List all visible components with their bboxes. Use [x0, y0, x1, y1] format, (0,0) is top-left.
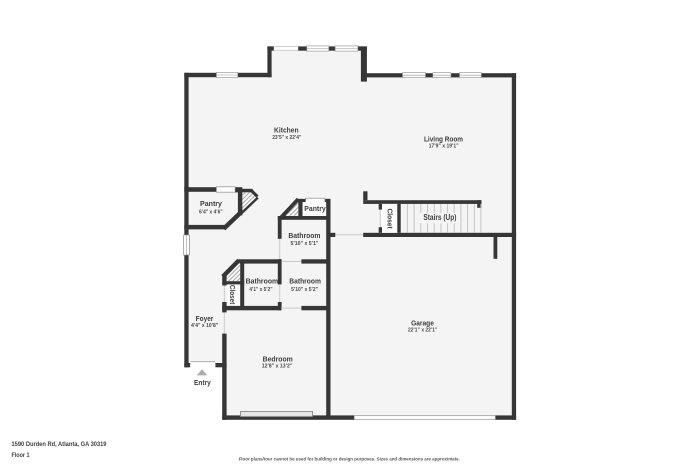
svg-text:Closet: Closet: [228, 285, 235, 305]
svg-text:5’10” x 5’2”: 5’10” x 5’2”: [291, 287, 318, 293]
svg-text:12’8” x 13’2”: 12’8” x 13’2”: [262, 363, 293, 369]
svg-text:Kitchen: Kitchen: [274, 126, 299, 135]
svg-text:Bathroom: Bathroom: [246, 277, 279, 286]
svg-text:Garage: Garage: [411, 319, 434, 328]
svg-text:Entry: Entry: [194, 378, 211, 387]
svg-text:22’1” x 22’1”: 22’1” x 22’1”: [408, 328, 437, 334]
svg-text:4’4” x 10’8”: 4’4” x 10’8”: [191, 323, 218, 329]
svg-text:Floor 1: Floor 1: [12, 452, 30, 459]
svg-text:17’9” x 19’1”: 17’9” x 19’1”: [429, 143, 459, 149]
svg-text:Floor plans/tour cannot be use: Floor plans/tour cannot be used for buil…: [239, 456, 461, 462]
svg-text:Pantry: Pantry: [200, 199, 223, 208]
svg-text:1590 Durden Rd, Atlanta, GA 30: 1590 Durden Rd, Atlanta, GA 30319: [12, 441, 107, 448]
svg-text:Bathroom: Bathroom: [289, 277, 321, 286]
svg-text:Foyer: Foyer: [196, 314, 214, 323]
svg-text:4’1” x 5’2”: 4’1” x 5’2”: [249, 287, 272, 293]
svg-text:Stairs (Up): Stairs (Up): [423, 213, 456, 222]
svg-text:Pantry: Pantry: [304, 204, 326, 213]
svg-text:6’4” x 4’6”: 6’4” x 4’6”: [199, 210, 223, 216]
svg-text:5’10” x 5’1”: 5’10” x 5’1”: [291, 241, 319, 247]
svg-text:Closet: Closet: [385, 209, 392, 230]
svg-text:Living Room: Living Room: [424, 134, 463, 143]
svg-text:23’5” x 22’4”: 23’5” x 22’4”: [272, 135, 301, 141]
svg-text:Bathroom: Bathroom: [288, 231, 320, 240]
svg-text:Bedroom: Bedroom: [263, 355, 294, 364]
